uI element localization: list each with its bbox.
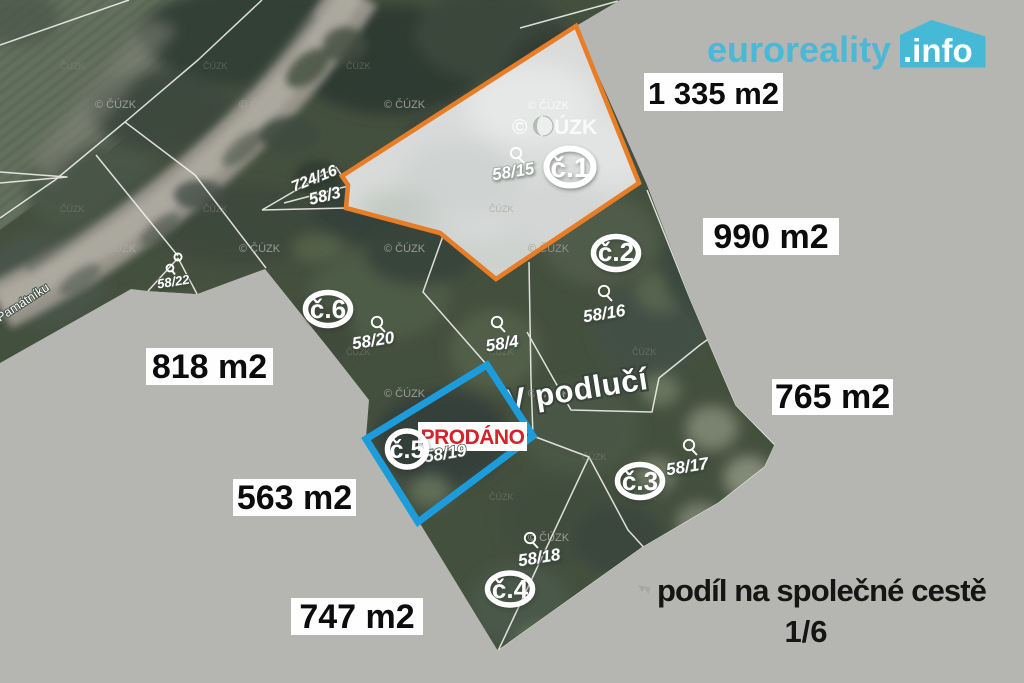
svg-text:818 m2: 818 m2 xyxy=(152,348,267,386)
svg-text:563 m2: 563 m2 xyxy=(237,479,352,517)
svg-text:747 m2: 747 m2 xyxy=(299,598,414,636)
svg-text:č.1: č.1 xyxy=(551,152,590,183)
svg-text:ČÚZK: ČÚZK xyxy=(203,204,228,214)
svg-text:podíl na společné cestě: podíl na společné cestě xyxy=(657,573,987,608)
svg-text:.info: .info xyxy=(903,32,973,69)
svg-text:© ČÚZK: © ČÚZK xyxy=(528,99,570,112)
svg-text:ČÚZK: ČÚZK xyxy=(489,492,514,502)
svg-text:© ČÚZK: © ČÚZK xyxy=(384,387,426,400)
svg-text:č.2: č.2 xyxy=(598,237,634,267)
svg-text:euroreality: euroreality xyxy=(707,29,891,70)
svg-text:1/6: 1/6 xyxy=(784,614,827,649)
svg-text:ÚZK: ÚZK xyxy=(554,115,597,139)
svg-text:© ČÚZK: © ČÚZK xyxy=(239,242,281,255)
svg-text:č.5: č.5 xyxy=(390,436,425,464)
svg-text:č.6: č.6 xyxy=(310,294,346,324)
svg-text:ČÚZK: ČÚZK xyxy=(632,347,657,357)
svg-text:ČÚZK: ČÚZK xyxy=(346,61,371,71)
svg-text:©: © xyxy=(512,116,528,139)
svg-text:ČÚZK: ČÚZK xyxy=(203,61,228,71)
svg-text:ČÚZK: ČÚZK xyxy=(489,204,514,214)
svg-text:1 335 m2: 1 335 m2 xyxy=(648,76,779,111)
svg-text:ČÚZK: ČÚZK xyxy=(60,204,85,214)
svg-text:765 m2: 765 m2 xyxy=(775,378,890,416)
svg-text:ČÚZK: ČÚZK xyxy=(60,61,85,71)
svg-text:č.4: č.4 xyxy=(492,574,529,604)
svg-text:ČÚZK: ČÚZK xyxy=(582,452,607,462)
svg-text:č.3: č.3 xyxy=(622,466,658,496)
svg-text:© ČÚZK: © ČÚZK xyxy=(95,98,137,111)
svg-text:990 m2: 990 m2 xyxy=(713,218,828,256)
svg-text:© ČÚZK: © ČÚZK xyxy=(239,98,281,111)
svg-text:© ČÚZK: © ČÚZK xyxy=(95,242,137,255)
svg-text:© ČÚZK: © ČÚZK xyxy=(384,98,426,111)
svg-text:© ČÚZK: © ČÚZK xyxy=(384,242,426,255)
